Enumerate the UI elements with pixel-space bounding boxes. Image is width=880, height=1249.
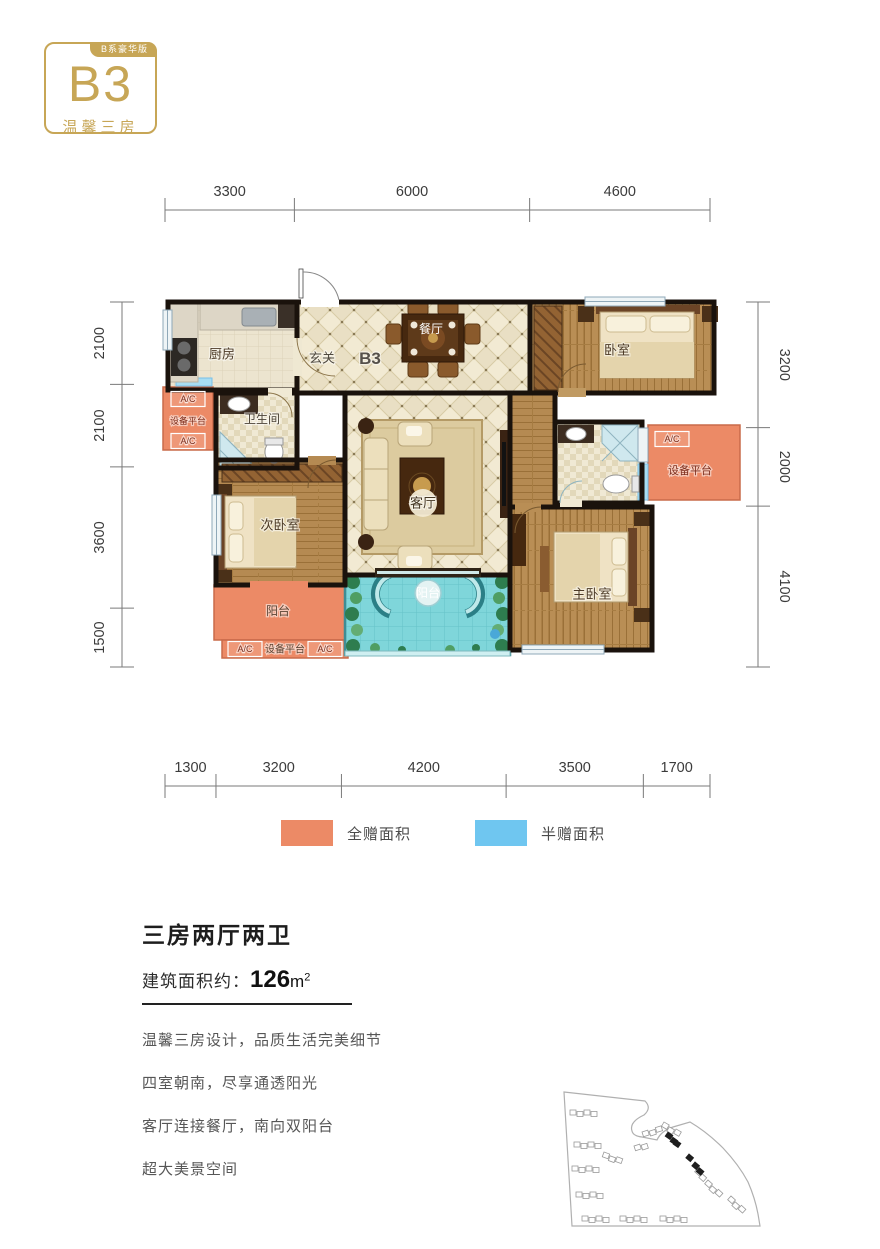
room-label: 玄关 bbox=[309, 351, 335, 366]
dimension-line-left: 2100210036001500 bbox=[84, 286, 136, 676]
dimension-label: 3200 bbox=[776, 349, 792, 381]
site-plan bbox=[548, 1076, 768, 1246]
dimension-line-bottom: 13003200420035001700 bbox=[150, 750, 750, 800]
feature-line: 客厅连接餐厅，南向双阳台 bbox=[142, 1115, 542, 1136]
room-label: 主卧室 bbox=[572, 587, 611, 602]
dimension-label: 3300 bbox=[214, 184, 246, 200]
area-sup: 2 bbox=[304, 972, 310, 984]
room-label: A/C bbox=[180, 436, 196, 446]
dimension-label: 3200 bbox=[263, 760, 295, 776]
badge-code: B3 bbox=[46, 59, 155, 109]
feature-line: 温馨三房设计，品质生活完美细节 bbox=[142, 1029, 542, 1050]
dimension-label: 4600 bbox=[604, 184, 636, 200]
legend-label: 全赠面积 bbox=[347, 823, 411, 844]
room-label: 餐厅 bbox=[419, 321, 443, 336]
legend: 全赠面积半赠面积 bbox=[281, 820, 605, 846]
features-list: 温馨三房设计，品质生活完美细节四室朝南，尽享通透阳光客厅连接餐厅，南向双阳台超大… bbox=[142, 1029, 542, 1179]
dimension-label: 2100 bbox=[92, 327, 108, 359]
badge-series-tab: B系豪华版 bbox=[90, 42, 157, 57]
room-label: A/C bbox=[664, 434, 680, 444]
room-label: 设备平台 bbox=[265, 643, 305, 656]
feature-line: 超大美景空间 bbox=[142, 1158, 542, 1179]
area-label: 建筑面积约： bbox=[142, 972, 250, 991]
room-label: 客厅 bbox=[410, 496, 436, 511]
legend-label: 半赠面积 bbox=[541, 823, 605, 844]
dimension-label: 3600 bbox=[92, 521, 108, 553]
area-value: 126 bbox=[250, 966, 290, 993]
badge-subtitle: 温馨三房 bbox=[46, 116, 155, 137]
unit-type-title: 三房两厅两卫 bbox=[142, 916, 542, 950]
info-block: 三房两厅两卫 建筑面积约：126m2 温馨三房设计，品质生活完美细节四室朝南，尽… bbox=[142, 916, 542, 1201]
room-label: 次卧室 bbox=[260, 518, 299, 533]
room-label: 厨房 bbox=[209, 347, 235, 362]
dimension-label: 2000 bbox=[776, 451, 792, 483]
room-label: 阳台 bbox=[416, 585, 440, 600]
area-unit: m bbox=[290, 972, 304, 991]
dimension-label: 4200 bbox=[408, 760, 440, 776]
room-label: A/C bbox=[237, 644, 253, 654]
legend-item: 半赠面积 bbox=[475, 820, 605, 846]
room-label: 卧室 bbox=[604, 343, 630, 358]
unit-badge: B系豪华版 B3 温馨三房 bbox=[44, 42, 157, 134]
dimension-line-right: 320020004100 bbox=[744, 286, 796, 676]
dimension-line-top: 330060004600 bbox=[150, 178, 750, 224]
page: B系豪华版 B3 温馨三房 330060004600 1300320042003… bbox=[0, 0, 880, 1249]
legend-swatch bbox=[475, 820, 527, 846]
dimension-label: 4100 bbox=[776, 570, 792, 602]
dimension-label: 1500 bbox=[92, 621, 108, 653]
floor-plan: 厨房玄关B3餐厅卧室卫生间A/C设备平台A/C次卧室客厅主卧室阳台A/C设备平台… bbox=[150, 262, 750, 672]
legend-item: 全赠面积 bbox=[281, 820, 411, 846]
dimension-label: 2100 bbox=[92, 409, 108, 441]
legend-swatch bbox=[281, 820, 333, 846]
dimension-label: 3500 bbox=[559, 760, 591, 776]
room-label: 卫生间 bbox=[244, 412, 280, 426]
area-line: 建筑面积约：126m2 bbox=[142, 966, 352, 1005]
room-label: 设备平台 bbox=[668, 463, 712, 477]
room-label: A/C bbox=[317, 644, 333, 654]
feature-line: 四室朝南，尽享通透阳光 bbox=[142, 1072, 542, 1093]
dimension-label: 6000 bbox=[396, 184, 428, 200]
dimension-label: 1700 bbox=[661, 760, 693, 776]
room-label: 设备平台 bbox=[170, 415, 206, 426]
room-label: 阳台 bbox=[266, 603, 290, 618]
dimension-label: 1300 bbox=[174, 760, 206, 776]
room-label: B3 bbox=[359, 349, 381, 368]
room-label: A/C bbox=[180, 394, 196, 404]
